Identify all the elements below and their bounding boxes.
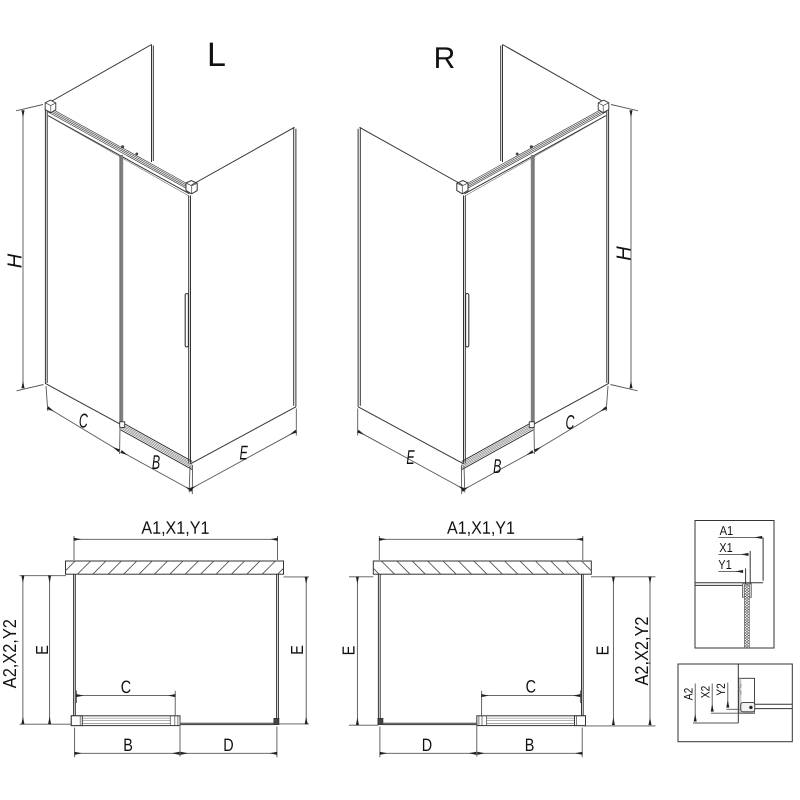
svg-text:B: B [123,736,133,756]
svg-text:C: C [526,677,537,697]
svg-text:C: C [79,409,89,432]
svg-text:A1,X1,Y1: A1,X1,Y1 [141,518,209,538]
svg-text:X1: X1 [719,540,733,555]
svg-text:H: H [614,246,636,261]
svg-text:E: E [33,645,53,655]
svg-text:A1,X1,Y1: A1,X1,Y1 [447,518,515,538]
svg-text:E: E [339,646,359,656]
svg-text:L: L [207,36,226,74]
svg-text:A2: A2 [683,688,696,700]
svg-text:X2: X2 [700,686,713,698]
svg-text:B: B [152,451,160,474]
svg-text:A1: A1 [720,523,734,538]
svg-text:A2,X2,Y2: A2,X2,Y2 [0,619,20,688]
svg-text:E: E [288,645,308,655]
svg-text:C: C [121,678,132,698]
svg-text:E: E [239,441,248,464]
svg-text:B: B [493,455,501,478]
svg-text:R: R [434,42,456,75]
svg-text:H: H [5,253,27,268]
svg-text:E: E [593,646,613,656]
svg-text:E: E [406,446,415,469]
svg-text:D: D [223,736,233,756]
svg-text:B: B [525,736,535,756]
svg-text:Y1: Y1 [718,557,732,572]
svg-text:A2,X2,Y2: A2,X2,Y2 [632,617,652,686]
svg-text:Y2: Y2 [715,683,728,695]
svg-text:D: D [422,736,432,756]
svg-text:C: C [566,411,576,434]
